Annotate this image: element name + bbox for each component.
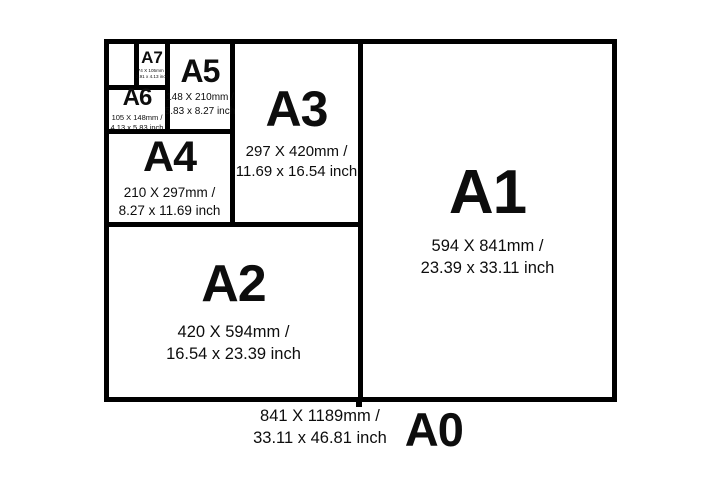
paper-a0-caption: 841 X 1189mm / 33.11 x 46.81 inch A0 [238,402,478,454]
paper-a3-label: A3 [266,84,328,134]
paper-a1: A1 594 X 841mm / 23.39 x 33.11 inch [363,44,612,397]
paper-a0-label: A0 [405,404,463,453]
paper-a4-label: A4 [143,136,196,179]
paper-a5-mm-dimensions: 148 X 210mm / [166,91,234,104]
paper-a0-mm-dimensions: 841 X 1189mm / [253,406,387,428]
paper-a1-inch-dimensions: 23.39 x 33.11 inch [421,258,555,280]
paper-a0-inch-dimensions: 33.11 x 46.81 inch [253,428,387,450]
a0-sheet-outline: A1 594 X 841mm / 23.39 x 33.11 inch A2 4… [104,39,617,402]
paper-a6-label: A6 [123,86,152,110]
paper-a6: A6 105 X 148mm / 4.13 x 5.83 inch [109,90,165,129]
paper-a2-mm-dimensions: 420 X 594mm / [178,322,290,344]
paper-a4-mm-dimensions: 210 X 297mm / [124,184,216,202]
paper-a6-inch-dimensions: 4.13 x 5.83 inch [111,123,164,133]
paper-a7-label: A7 [141,49,163,66]
paper-a7: A7 74 X 105mm / 2.91 x 4.13 inch [139,44,165,85]
paper-a5-label: A5 [181,55,220,87]
paper-a2-inch-dimensions: 16.54 x 23.39 inch [166,344,301,366]
paper-a7-inch-dimensions: 2.91 x 4.13 inch [136,74,168,80]
paper-a3: A3 297 X 420mm / 11.69 x 16.54 inch [235,44,358,222]
paper-a2: A2 420 X 594mm / 16.54 x 23.39 inch [109,227,358,397]
paper-sizes-diagram: A1 594 X 841mm / 23.39 x 33.11 inch A2 4… [0,0,720,480]
paper-a3-inch-dimensions: 11.69 x 16.54 inch [236,162,357,182]
paper-a2-label: A2 [201,258,265,310]
paper-a5-inch-dimensions: 5.83 x 8.27 inch [165,105,236,118]
paper-a4-inch-dimensions: 8.27 x 11.69 inch [119,202,221,220]
paper-a4: A4 210 X 297mm / 8.27 x 11.69 inch [109,134,230,222]
paper-a3-mm-dimensions: 297 X 420mm / [246,142,348,162]
paper-a0-dimensions: 841 X 1189mm / 33.11 x 46.81 inch [253,406,387,450]
paper-a5: A5 148 X 210mm / 5.83 x 8.27 inch [170,44,230,129]
paper-a6-mm-dimensions: 105 X 148mm / [112,113,163,123]
paper-a1-mm-dimensions: 594 X 841mm / [432,236,544,258]
paper-a8-unlabeled [109,44,134,85]
paper-a1-label: A1 [449,162,526,224]
